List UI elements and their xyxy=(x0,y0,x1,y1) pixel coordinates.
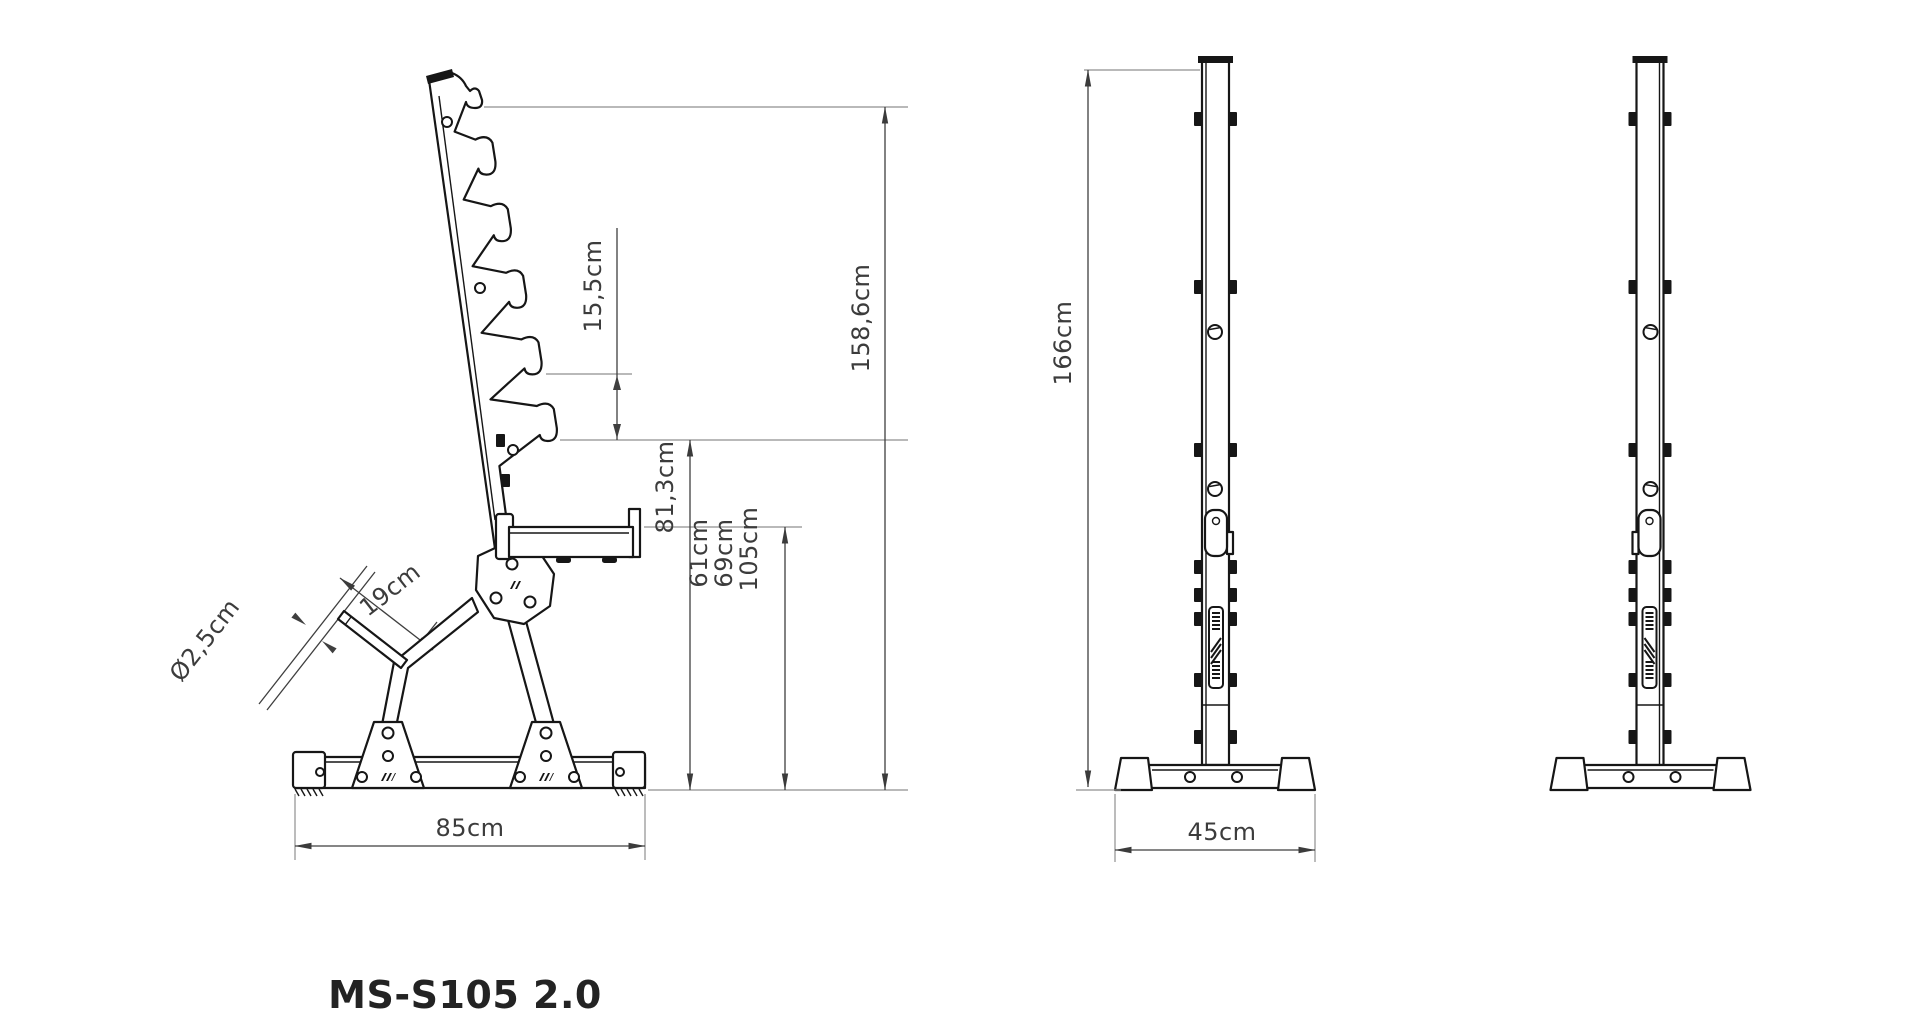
model-title: MS-S105 2.0 xyxy=(328,973,602,1017)
dim-label-lowest-hook-height: 81,3cm xyxy=(651,440,679,533)
dim-label-rack-height: 158,6cm xyxy=(847,264,875,373)
rear-strut xyxy=(508,614,554,730)
technical-drawing-page: 15,5cm 158,6cm 81,3cm 61cm 69cm 105cm 85… xyxy=(0,0,1920,1024)
dim-label-base-width: 45cm xyxy=(1187,818,1256,846)
technical-drawing: 15,5cm 158,6cm 81,3cm 61cm 69cm 105cm 85… xyxy=(0,0,1920,1024)
dim-label-upright-height: 166cm xyxy=(1049,301,1077,386)
rear-upright xyxy=(1551,56,1751,790)
front-view: 166cm 45cm xyxy=(1049,56,1315,862)
dim-label-shelf-height-2: 69cm xyxy=(710,518,738,587)
front-upright xyxy=(1115,56,1315,790)
dim-label-shelf-height-1: 61cm xyxy=(685,518,713,587)
dim-label-base-length: 85cm xyxy=(435,814,504,842)
spotter-shelf xyxy=(496,509,640,563)
dim-label-peg-diameter: Ø2,5cm xyxy=(164,593,246,686)
side-view: 15,5cm 158,6cm 81,3cm 61cm 69cm 105cm 85… xyxy=(164,69,908,860)
dim-label-peg-length: 19cm xyxy=(354,557,426,622)
base-foot-side xyxy=(293,752,645,796)
foot-hatch-marks xyxy=(295,789,643,796)
dim-label-shelf-height-3: 105cm xyxy=(735,507,763,592)
hook-column xyxy=(426,69,557,563)
dim-label-hook-spacing: 15,5cm xyxy=(579,239,607,332)
rear-view xyxy=(1551,56,1751,790)
